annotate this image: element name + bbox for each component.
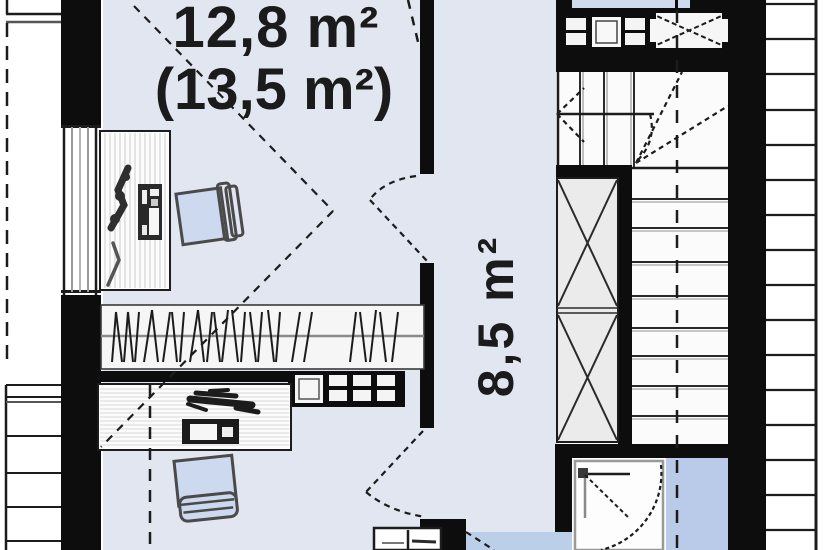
svg-text:8,5 m²: 8,5 m² [468,235,524,398]
svg-text:(13,5 m²): (13,5 m²) [155,57,394,122]
svg-text:12,8 m²: 12,8 m² [173,0,380,60]
